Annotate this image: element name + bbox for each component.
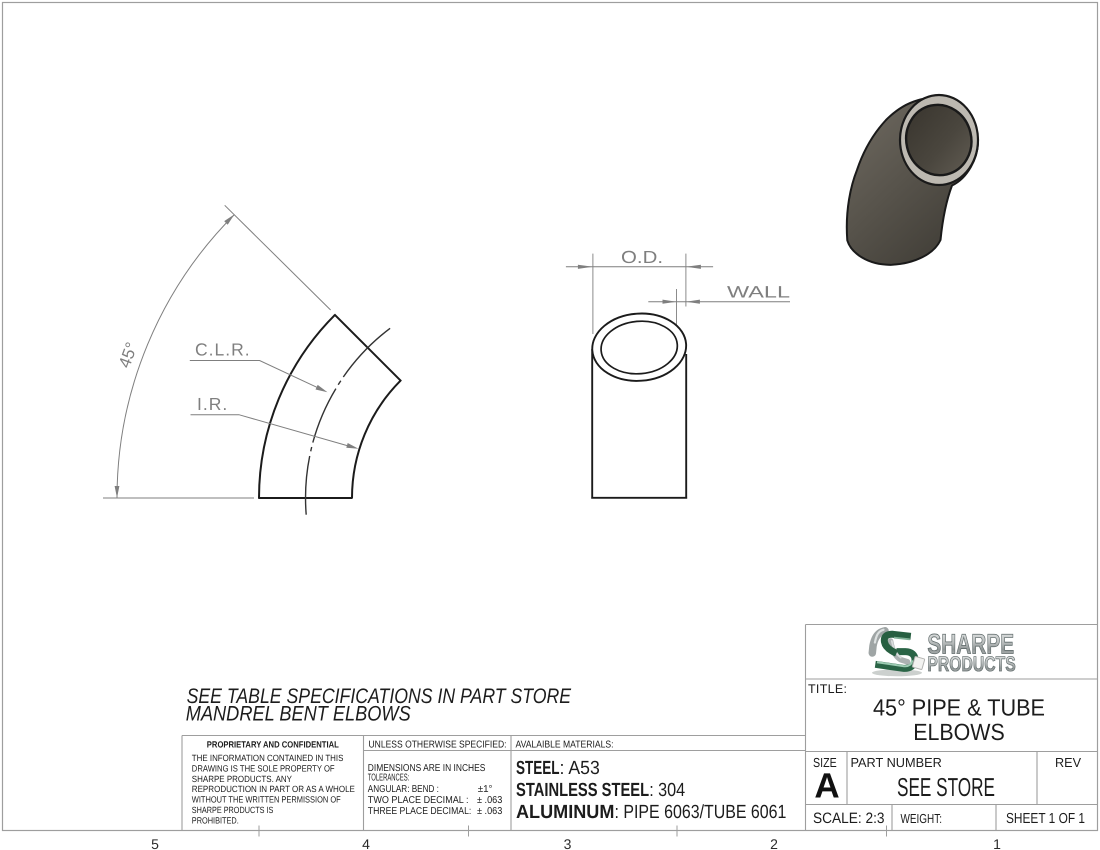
svg-text:REPRODUCTION IN PART OR AS A W: REPRODUCTION IN PART OR AS A WHOLE [192,784,355,794]
svg-text:: A53: : A53 [560,758,600,779]
svg-text:ALUMINUM: ALUMINUM [516,802,614,823]
svg-text:45° PIPE & TUBE: 45° PIPE & TUBE [873,695,1045,721]
svg-text:THREE PLACE DECIMAL:: THREE PLACE DECIMAL: [368,806,472,817]
svg-text:5: 5 [151,836,159,850]
svg-text:SCALE: 2:3: SCALE: 2:3 [813,810,885,827]
svg-text:DRAWING IS THE SOLE PROPERTY O: DRAWING IS THE SOLE PROPERTY OF [192,763,335,773]
svg-text:I.R.: I.R. [197,394,228,414]
svg-text:PART NUMBER: PART NUMBER [851,755,942,770]
svg-text:1: 1 [993,836,1001,850]
svg-text:: 304: : 304 [649,780,685,801]
svg-text:UNLESS OTHERWISE SPECIFIED:: UNLESS OTHERWISE SPECIFIED: [369,740,507,751]
svg-text:STAINLESS STEEL: STAINLESS STEEL [516,780,649,801]
svg-text:4: 4 [362,836,370,850]
svg-text:: PIPE 6063/TUBE 6061: : PIPE 6063/TUBE 6061 [615,802,787,823]
svg-text:SEE STORE: SEE STORE [897,772,995,802]
svg-text:3: 3 [564,836,572,850]
svg-text:STEEL: STEEL [516,758,560,779]
svg-text:TOLERANCES:: TOLERANCES: [368,773,410,784]
svg-text:WALL: WALL [727,284,790,302]
svg-text:SHARPE PRODUCTS. ANY: SHARPE PRODUCTS. ANY [192,774,292,784]
svg-text:WITHOUT THE WRITTEN PERMISSION: WITHOUT THE WRITTEN PERMISSION OF [192,795,341,805]
svg-text:THE INFORMATION CONTAINED IN T: THE INFORMATION CONTAINED IN THIS [192,753,344,763]
svg-text:MANDREL BENT ELBOWS: MANDREL BENT ELBOWS [186,703,411,726]
svg-text:TITLE:: TITLE: [808,682,847,696]
svg-text:± .063: ± .063 [477,806,503,817]
svg-text:AVALAIBLE MATERIALS:: AVALAIBLE MATERIALS: [516,740,614,751]
svg-text:TWO PLACE DECIMAL :: TWO PLACE DECIMAL : [368,795,469,806]
svg-text:REV: REV [1055,755,1081,770]
svg-text:ELBOWS: ELBOWS [913,719,1005,745]
svg-text:PRODUCTS: PRODUCTS [927,653,1015,676]
svg-text:A: A [814,767,839,806]
svg-text:±1°: ±1° [478,784,493,795]
svg-text:O.D.: O.D. [621,247,663,267]
svg-text:C.L.R.: C.L.R. [195,340,251,360]
svg-text:WEIGHT:: WEIGHT: [901,811,943,826]
svg-text:PROPRIETARY AND CONFIDENTIAL: PROPRIETARY AND CONFIDENTIAL [207,740,339,750]
svg-text:ANGULAR: BEND :: ANGULAR: BEND : [368,784,439,795]
svg-text:± .063: ± .063 [477,795,503,806]
svg-text:2: 2 [770,836,778,850]
svg-text:45°: 45° [115,340,142,371]
svg-text:PROHIBITED.: PROHIBITED. [192,815,239,825]
svg-text:SHEET 1 OF 1: SHEET 1 OF 1 [1006,811,1085,827]
svg-text:SHARPE PRODUCTS IS: SHARPE PRODUCTS IS [192,805,274,815]
